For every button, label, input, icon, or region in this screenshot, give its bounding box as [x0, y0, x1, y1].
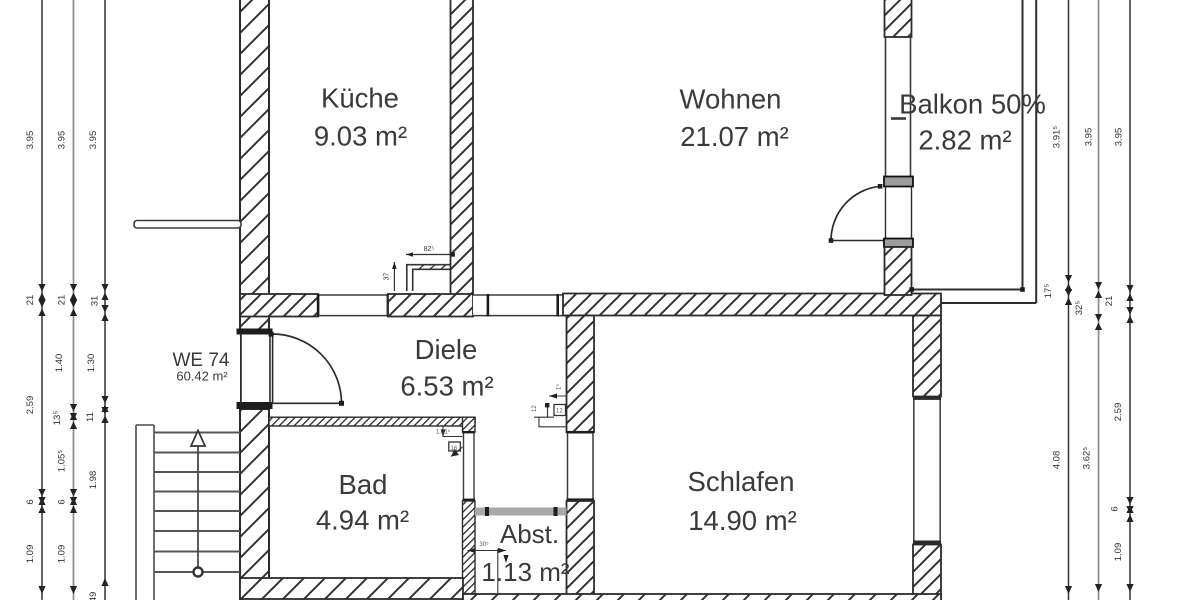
- svg-text:1.40: 1.40: [54, 354, 65, 373]
- svg-text:17⁵: 17⁵: [1043, 284, 1054, 299]
- svg-text:2.82 m²: 2.82 m²: [918, 125, 1011, 156]
- svg-text:6: 6: [1110, 506, 1121, 511]
- svg-text:1.09: 1.09: [57, 545, 68, 564]
- svg-text:Abst.: Abst.: [500, 519, 559, 549]
- svg-text:1.05⁵: 1.05⁵: [57, 450, 68, 472]
- svg-text:1.09: 1.09: [25, 545, 36, 564]
- svg-text:1.09: 1.09: [1113, 543, 1124, 562]
- svg-text:Balkon 50%: Balkon 50%: [899, 89, 1046, 120]
- svg-text:1⁵: 1⁵: [556, 384, 563, 390]
- svg-text:4.94 m²: 4.94 m²: [316, 505, 409, 536]
- svg-text:2.59: 2.59: [25, 396, 36, 415]
- svg-text:14.90 m²: 14.90 m²: [688, 505, 797, 536]
- svg-text:31: 31: [90, 296, 101, 307]
- svg-text:3.95: 3.95: [57, 131, 68, 150]
- svg-text:3.95: 3.95: [88, 131, 99, 150]
- svg-text:11: 11: [85, 412, 96, 422]
- svg-text:9.03 m²: 9.03 m²: [314, 121, 407, 152]
- svg-text:6.53 m²: 6.53 m²: [400, 371, 493, 402]
- svg-text:Bad: Bad: [339, 469, 388, 500]
- svg-text:Wohnen: Wohnen: [680, 84, 782, 115]
- svg-text:3.95: 3.95: [1084, 128, 1095, 147]
- svg-text:21: 21: [57, 295, 68, 306]
- svg-text:3.95: 3.95: [25, 131, 36, 150]
- svg-text:82⁵: 82⁵: [424, 246, 435, 253]
- svg-text:3.62⁵: 3.62⁵: [1082, 447, 1093, 469]
- svg-text:13⁵: 13⁵: [52, 411, 63, 426]
- svg-text:Schlafen: Schlafen: [687, 466, 794, 497]
- svg-text:1.01⁵: 1.01⁵: [436, 429, 451, 436]
- svg-text:6: 6: [25, 499, 36, 504]
- svg-text:Küche: Küche: [321, 83, 399, 114]
- svg-text:37: 37: [384, 273, 391, 281]
- svg-text:30⁵: 30⁵: [479, 541, 489, 548]
- svg-text:1.98: 1.98: [88, 471, 99, 490]
- svg-text:12: 12: [532, 405, 538, 412]
- svg-text:21: 21: [25, 295, 36, 306]
- svg-text:60.42 m²: 60.42 m²: [176, 369, 228, 384]
- svg-text:3.95: 3.95: [1114, 128, 1125, 147]
- svg-text:4.08: 4.08: [1052, 451, 1063, 470]
- svg-text:49: 49: [88, 592, 99, 600]
- svg-text:Diele: Diele: [415, 334, 478, 365]
- svg-text:21.07 m²: 21.07 m²: [680, 121, 789, 152]
- svg-text:2.59: 2.59: [1113, 403, 1124, 422]
- svg-text:12: 12: [556, 409, 563, 415]
- svg-text:16: 16: [451, 446, 458, 452]
- svg-text:1.13 m²: 1.13 m²: [481, 557, 569, 587]
- svg-text:6: 6: [57, 499, 68, 504]
- svg-text:32⁵: 32⁵: [1074, 301, 1085, 316]
- svg-text:1.30: 1.30: [86, 354, 97, 373]
- svg-text:21: 21: [1104, 296, 1115, 307]
- svg-text:3.91⁵: 3.91⁵: [1052, 126, 1063, 148]
